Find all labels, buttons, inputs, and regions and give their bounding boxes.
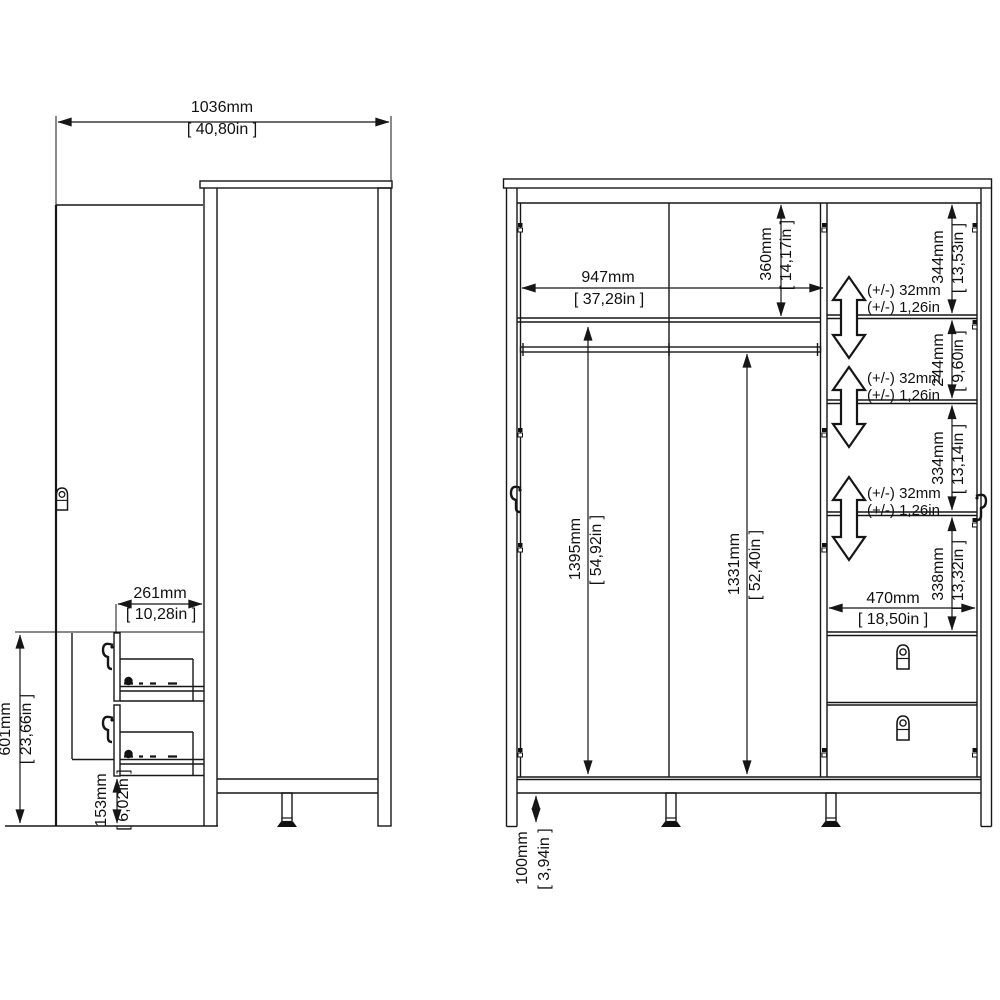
dim-label-in: [ 52,40in ] [747, 530, 764, 600]
dim-label-mm: 153mm [93, 773, 110, 826]
adjust-label-in: (+/-) 1,26in [867, 387, 940, 404]
dim-label-in: [ 54,92in ] [588, 515, 605, 585]
double-arrow-icon [833, 367, 865, 447]
dim-label-in: [ 3,94in ] [536, 828, 553, 889]
technical-drawing-canvas: 1036mm [ 40,80in ] 601mm [ 23,66in ] 153… [0, 0, 1000, 1000]
leg-foot [821, 818, 841, 827]
shelf-adjust-2: (+/-) 32mm (+/-) 1,26in [833, 367, 941, 447]
drawer-front [114, 633, 120, 701]
adjust-label-mm: (+/-) 32mm [867, 282, 941, 299]
double-arrow-icon [833, 477, 865, 560]
dim-label-in: [ 6,02in ] [115, 769, 132, 830]
drawer-handle-icon [897, 645, 909, 669]
open-drawer-1 [103, 633, 204, 701]
runner-stop [124, 750, 132, 758]
wardrobe-dimension-diagram: 1036mm [ 40,80in ] 601mm [ 23,66in ] 153… [0, 0, 1000, 1000]
dim-label-mm: 360mm [758, 227, 775, 280]
adjust-label-mm: (+/-) 32mm [867, 485, 941, 502]
dim-base-height: 153mm [ 6,02in ] [93, 769, 132, 830]
leg [826, 793, 836, 820]
hanging-rail [521, 347, 821, 352]
leg-foot [277, 818, 297, 827]
dim-label-in: [ 40,80in ] [187, 121, 257, 138]
drawer-handle-icon [103, 644, 114, 669]
dim-label-in: [ 9,60in ] [950, 330, 967, 391]
open-drawer-2 [103, 705, 204, 776]
dim-label-mm: 334mm [930, 431, 947, 484]
dim-left-top-compartment: 360mm [ 14,17in ] [758, 205, 795, 316]
dim-total-depth-open: 1036mm [ 40,80in ] [58, 99, 389, 138]
dim-label-in: [ 10,28in ] [126, 606, 196, 623]
dim-label-mm: 470mm [866, 590, 919, 607]
top-panel [200, 181, 392, 188]
dim-drawer-section-height: 601mm [ 23,66in ] [0, 635, 35, 823]
dim-drawer-extension: 261mm [ 10,28in ] [116, 585, 202, 632]
dim-label-in: [ 14,17in ] [778, 220, 795, 290]
dim-right-interior-height: 1331mm [ 52,40in ] [726, 354, 764, 774]
adjust-label-in: (+/-) 1,26in [867, 502, 940, 519]
dim-label-mm: 947mm [581, 269, 634, 286]
runner-stop [124, 677, 132, 685]
dim-right-compartment-4: 338mm [ 13,32in ] [930, 518, 967, 631]
dim-left-interior-height: 1395mm [ 54,92in ] [567, 327, 605, 774]
leg [666, 793, 676, 820]
back-panel [378, 188, 391, 826]
adjust-label-in: (+/-) 1,26in [867, 299, 940, 316]
leg [282, 793, 292, 820]
drawer-handle-icon [897, 716, 909, 740]
dim-label-mm: 601mm [0, 702, 14, 755]
dim-label-in: [ 23,66in ] [18, 694, 35, 764]
adjust-label-mm: (+/-) 32mm [867, 370, 941, 387]
shelf-adjust-1: (+/-) 32mm (+/-) 1,26in [833, 277, 941, 358]
dim-label-mm: 338mm [930, 547, 947, 600]
dim-label-in: [ 13,53in ] [950, 223, 967, 293]
drawer-front [114, 705, 120, 776]
dim-label-mm: 344mm [930, 230, 947, 283]
front-view: 947mm [ 37,28in ] 360mm [ 14,17in ] 344m… [504, 179, 992, 890]
door-handle-icon [56, 488, 67, 510]
side-view: 1036mm [ 40,80in ] 601mm [ 23,66in ] 153… [0, 99, 392, 831]
dim-label-in: [ 13,32in ] [950, 540, 967, 610]
right-column-drawers [827, 645, 977, 740]
shelf-adjust-3: (+/-) 32mm (+/-) 1,26in [833, 477, 941, 560]
dim-label-in: [ 18,50in ] [858, 611, 928, 628]
dim-label-mm: 1395mm [567, 518, 584, 580]
dim-label-mm: 1331mm [726, 533, 743, 595]
drawer-handle-icon [103, 717, 114, 742]
double-arrow-icon [833, 277, 865, 358]
dim-label-in: [ 13,14in ] [950, 424, 967, 494]
dim-leg-height: 100mm [ 3,94in ] [514, 796, 553, 890]
dim-label-in: [ 37,28in ] [574, 291, 644, 308]
dim-label-mm: 261mm [133, 585, 186, 602]
dim-label-mm: 100mm [514, 831, 531, 884]
dim-label-mm: 1036mm [191, 99, 253, 116]
leg-foot [661, 818, 681, 827]
top-panel [504, 179, 992, 188]
